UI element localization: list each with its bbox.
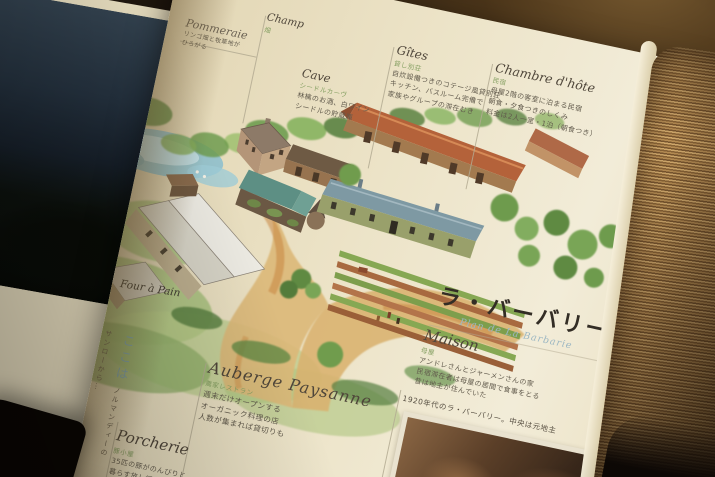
table-surface: Pommeraie リンゴ畑と牧草地が ひろがる Champ 畑 Cave シー… [0,0,715,477]
map-label-porcherie: Porcherie 豚小屋 35匹の豚がのんびりと 暮らす放し飼いの豚舎 [108,428,193,477]
farmhouse [314,171,489,260]
